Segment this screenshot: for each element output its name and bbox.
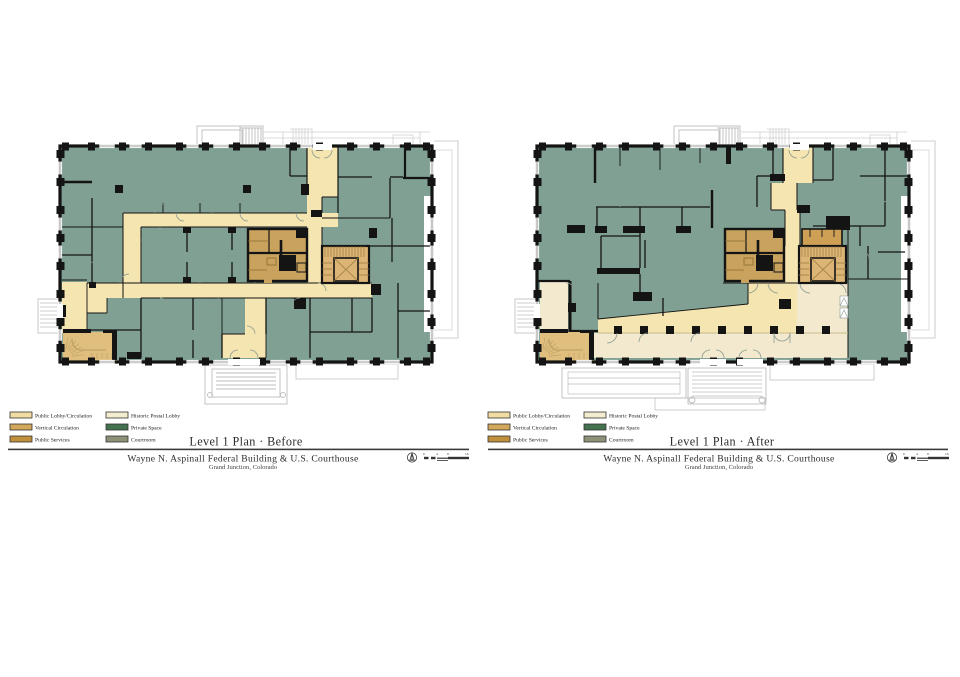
svg-text:0: 0 — [423, 452, 425, 456]
svg-text:Grand Junction, Colorado: Grand Junction, Colorado — [209, 464, 278, 471]
svg-text:0: 0 — [903, 452, 905, 456]
svg-text:Wayne N. Aspinall Federal Buil: Wayne N. Aspinall Federal Building & U.S… — [127, 454, 358, 465]
svg-text:Level 1 Plan · After: Level 1 Plan · After — [670, 435, 775, 449]
svg-text:Vertical Circulation: Vertical Circulation — [513, 425, 557, 431]
svg-text:Historic Postal Lobby: Historic Postal Lobby — [131, 413, 180, 419]
svg-text:Wayne N. Aspinall Federal Buil: Wayne N. Aspinall Federal Building & U.S… — [603, 454, 834, 465]
svg-text:Private Space: Private Space — [131, 425, 162, 431]
svg-text:Public Services: Public Services — [35, 437, 70, 443]
svg-text:Public Lobby/Circulation: Public Lobby/Circulation — [513, 413, 570, 419]
svg-text:Historic Postal Lobby: Historic Postal Lobby — [609, 413, 658, 419]
svg-text:Level 1 Plan · Before: Level 1 Plan · Before — [189, 435, 302, 449]
svg-text:Courtroom: Courtroom — [609, 437, 634, 443]
svg-text:16: 16 — [945, 452, 949, 456]
svg-text:8: 8 — [447, 452, 449, 456]
svg-text:Private Space: Private Space — [609, 425, 640, 431]
svg-text:8: 8 — [927, 452, 929, 456]
svg-text:4: 4 — [916, 452, 918, 456]
svg-text:Public Lobby/Circulation: Public Lobby/Circulation — [35, 413, 92, 419]
svg-text:16: 16 — [465, 452, 469, 456]
svg-text:4: 4 — [436, 452, 438, 456]
svg-text:Vertical Circulation: Vertical Circulation — [35, 425, 79, 431]
svg-text:Public Services: Public Services — [513, 437, 548, 443]
svg-text:Courtroom: Courtroom — [131, 437, 156, 443]
svg-text:Grand Junction, Colorado: Grand Junction, Colorado — [685, 464, 754, 471]
